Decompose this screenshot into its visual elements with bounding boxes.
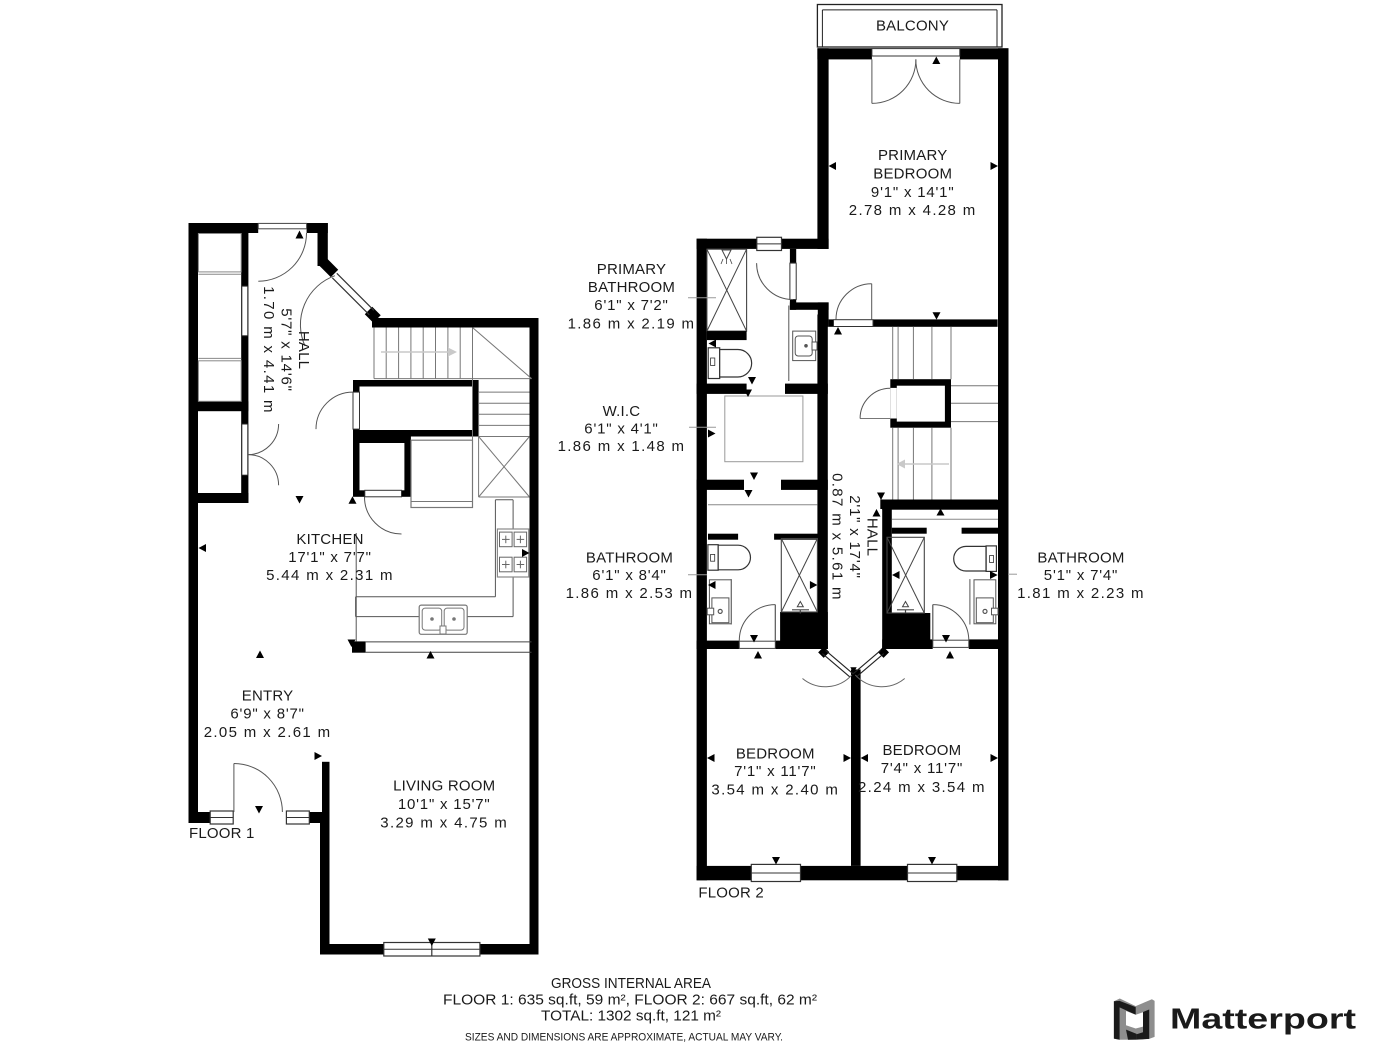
svg-text:HALL: HALL [295,331,312,369]
svg-text:0.87 m x 5.61 m: 0.87 m x 5.61 m [829,473,846,601]
svg-text:5'1" x 7'4": 5'1" x 7'4" [1044,567,1118,584]
svg-text:BEDROOM: BEDROOM [873,166,952,183]
svg-text:5'7" x 14'6": 5'7" x 14'6" [278,308,295,392]
svg-text:1.70 m x 4.41 m: 1.70 m x 4.41 m [260,286,277,414]
svg-text:1.86 m x 1.48 m: 1.86 m x 1.48 m [558,438,686,455]
svg-text:2.05 m x 2.61 m: 2.05 m x 2.61 m [204,724,332,741]
svg-text:17'1" x 7'7": 17'1" x 7'7" [288,549,372,566]
svg-text:7'1" x 11'7": 7'1" x 11'7" [734,763,816,780]
svg-text:FLOOR 1: 635 sq.ft, 59 m², FLO: FLOOR 1: 635 sq.ft, 59 m², FLOOR 2: 667 … [443,993,817,1009]
svg-text:2.24 m x 3.54 m: 2.24 m x 3.54 m [858,779,986,796]
svg-text:1.81 m x 2.23 m: 1.81 m x 2.23 m [1017,585,1145,602]
svg-text:BALCONY: BALCONY [876,18,949,35]
svg-text:10'1" x 15'7": 10'1" x 15'7" [398,796,491,813]
svg-text:1.86 m x 2.19 m: 1.86 m x 2.19 m [568,316,696,333]
svg-text:3.54 m x 2.40 m: 3.54 m x 2.40 m [711,782,839,799]
svg-text:BATHROOM: BATHROOM [586,550,673,567]
svg-text:2'1" x 17'4": 2'1" x 17'4" [846,495,863,579]
svg-text:KITCHEN: KITCHEN [296,531,363,548]
svg-text:6'9" x 8'7": 6'9" x 8'7" [230,706,304,723]
svg-text:2.78 m x 4.28 m: 2.78 m x 4.28 m [849,202,977,219]
svg-text:W.I.C: W.I.C [603,403,641,420]
svg-text:FLOOR 2: FLOOR 2 [698,885,764,902]
svg-text:9'1" x 14'1": 9'1" x 14'1" [871,184,955,201]
svg-text:BEDROOM: BEDROOM [882,742,961,759]
svg-text:PRIMARY: PRIMARY [878,147,947,164]
svg-text:6'1" x 7'2": 6'1" x 7'2" [594,297,668,314]
svg-text:ENTRY: ENTRY [242,688,294,705]
svg-text:LIVING ROOM: LIVING ROOM [393,778,495,795]
svg-text:1.86 m x 2.53 m: 1.86 m x 2.53 m [566,585,694,602]
svg-text:HALL: HALL [864,518,881,556]
svg-text:FLOOR 1: FLOOR 1 [189,825,255,842]
svg-text:TOTAL: 1302 sq.ft, 121 m²: TOTAL: 1302 sq.ft, 121 m² [541,1009,721,1025]
svg-text:BATHROOM: BATHROOM [1037,550,1124,567]
svg-text:3.29 m x 4.75 m: 3.29 m x 4.75 m [380,815,508,832]
svg-text:GROSS INTERNAL AREA: GROSS INTERNAL AREA [551,976,711,992]
svg-text:Matterport: Matterport [1170,1004,1356,1036]
svg-text:6'1" x 8'4": 6'1" x 8'4" [592,567,666,584]
svg-text:BEDROOM: BEDROOM [736,746,815,763]
svg-text:7'4" x 11'7": 7'4" x 11'7" [881,760,963,777]
svg-text:PRIMARY: PRIMARY [597,261,666,278]
svg-text:SIZES AND DIMENSIONS ARE APPRO: SIZES AND DIMENSIONS ARE APPROXIMATE, AC… [465,1032,783,1044]
svg-text:6'1" x 4'1": 6'1" x 4'1" [584,421,658,438]
svg-text:5.44 m x 2.31 m: 5.44 m x 2.31 m [266,567,394,584]
svg-text:BATHROOM: BATHROOM [588,279,675,296]
